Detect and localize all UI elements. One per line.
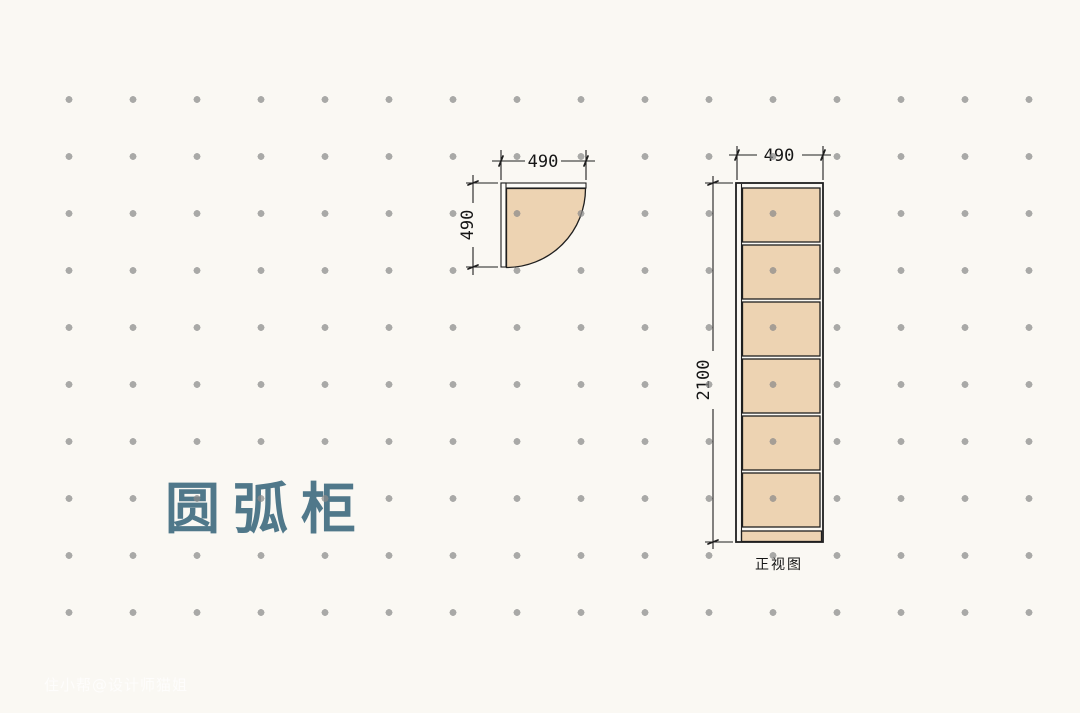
compartment xyxy=(743,473,821,527)
elevation-height-dimension: 2100 xyxy=(694,176,733,549)
dimension-label: 2100 xyxy=(694,360,714,401)
dimension-label: 490 xyxy=(764,146,795,166)
elevation-width-dimension: 490 xyxy=(729,146,831,180)
dimension-label: 490 xyxy=(458,210,478,241)
dimension-label: 490 xyxy=(528,152,559,172)
plan-view: 490 490 xyxy=(458,150,595,275)
compartment xyxy=(743,188,821,242)
elevation-view: 490 2100 正视图 xyxy=(694,146,831,573)
plan-quarter-round-body xyxy=(507,189,586,268)
page-title: 圆弧柜 xyxy=(165,464,369,544)
kick-plate xyxy=(742,531,822,542)
design-canvas: 490 490 xyxy=(0,0,1080,713)
plan-side-panel xyxy=(501,183,506,267)
compartment xyxy=(743,416,821,470)
plan-depth-dimension: 490 xyxy=(458,175,498,275)
plan-width-dimension: 490 xyxy=(492,150,595,180)
plan-top-panel xyxy=(501,183,586,188)
compartment xyxy=(743,359,821,413)
cad-drawing: 490 490 xyxy=(0,0,1080,713)
watermark: 住小帮@设计师猫姐 xyxy=(44,674,188,695)
compartment xyxy=(743,302,821,356)
view-caption: 正视图 xyxy=(755,557,803,573)
elevation-compartments xyxy=(743,188,821,527)
compartment xyxy=(743,245,821,299)
